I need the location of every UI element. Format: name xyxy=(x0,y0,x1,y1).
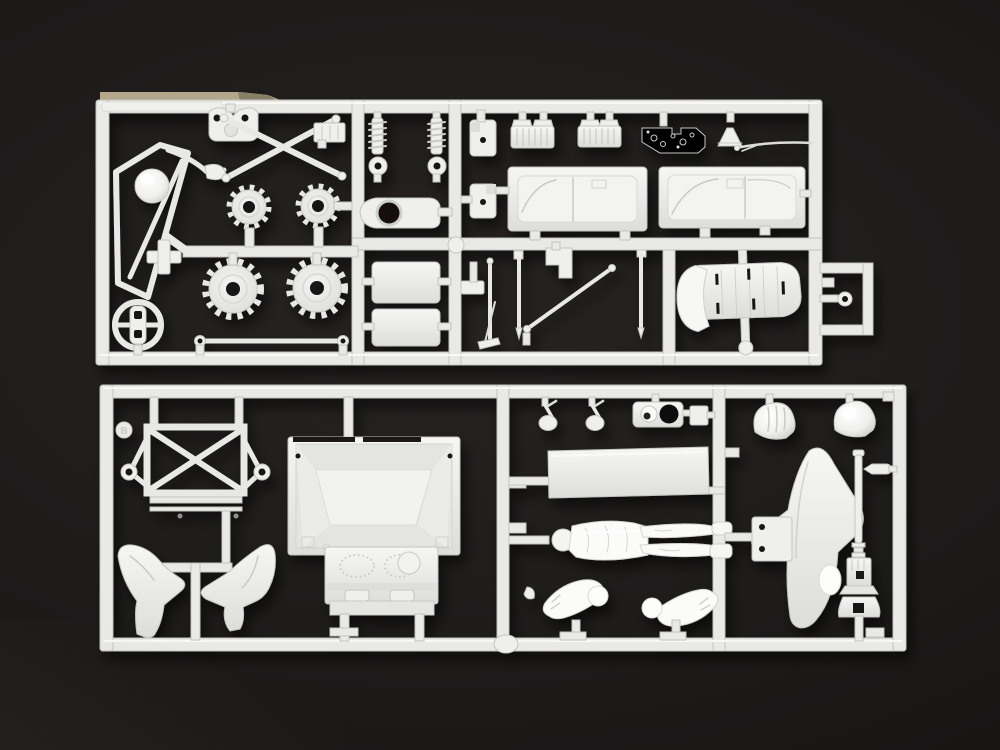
body-side-panel-right xyxy=(659,167,811,237)
hinge-bracket-lower xyxy=(461,184,496,218)
sprue-photo: B xyxy=(0,0,1000,750)
drive-sprocket-large-left xyxy=(206,253,260,316)
x-brace-frame xyxy=(121,397,270,519)
jack-pedestal xyxy=(839,450,898,641)
drive-sprocket-large-right xyxy=(290,253,344,315)
steering-wheel xyxy=(115,302,161,355)
small-hook xyxy=(524,587,534,599)
bucket-seat xyxy=(675,248,803,357)
figure-arm-right xyxy=(642,589,718,640)
instrument-cluster xyxy=(633,394,693,427)
drive-sprocket-small-left xyxy=(230,188,268,247)
antenna-rod xyxy=(735,143,813,151)
helmet-ribbed xyxy=(754,394,795,439)
grip-handle xyxy=(864,464,897,474)
junction-box xyxy=(690,406,715,425)
firewall-dashboard xyxy=(325,547,438,641)
shock-absorber-left xyxy=(369,112,387,182)
front-fender-right xyxy=(201,545,275,631)
flat-panel-upper xyxy=(362,262,451,303)
foot-pedal-right xyxy=(586,397,604,431)
gate-node xyxy=(448,237,464,253)
shock-absorber-right xyxy=(428,112,446,182)
ribbed-box xyxy=(314,123,345,148)
radiator-grille-right xyxy=(578,112,621,147)
radiator-grille-left xyxy=(511,112,554,148)
photo-stage: B xyxy=(0,0,1000,750)
horn-funnel xyxy=(718,112,742,146)
wiper-rod xyxy=(478,258,500,349)
helmet-smooth xyxy=(834,394,875,437)
lower-sprue: B xyxy=(100,385,906,653)
pointed-rod xyxy=(514,251,523,339)
instrument-plate xyxy=(642,112,705,153)
body-side-panel-left xyxy=(496,167,647,240)
headlight-dome xyxy=(135,169,169,203)
figure-arm-left xyxy=(543,580,608,640)
support-rod xyxy=(637,250,646,338)
embossed-label-plate xyxy=(102,102,222,111)
drive-sprocket-small-right xyxy=(299,187,352,247)
upper-sprue xyxy=(96,92,873,365)
clip-bracket xyxy=(461,262,484,294)
cargo-tub xyxy=(288,397,460,555)
foot-pedal-left xyxy=(539,397,557,431)
hinge-bracket-upper xyxy=(470,110,496,156)
floor-plate xyxy=(509,447,725,498)
mount-bracket xyxy=(752,517,792,561)
sprue-letter-badge: B xyxy=(116,422,132,438)
axle-arm xyxy=(360,198,452,228)
front-fender-left xyxy=(118,545,185,638)
towing-eyelet xyxy=(838,292,852,306)
driver-figure xyxy=(509,521,732,560)
gate-node xyxy=(494,635,518,653)
sprue-letter: B xyxy=(120,426,127,437)
flat-panel-lower xyxy=(362,309,451,346)
extension-frame xyxy=(820,263,873,335)
